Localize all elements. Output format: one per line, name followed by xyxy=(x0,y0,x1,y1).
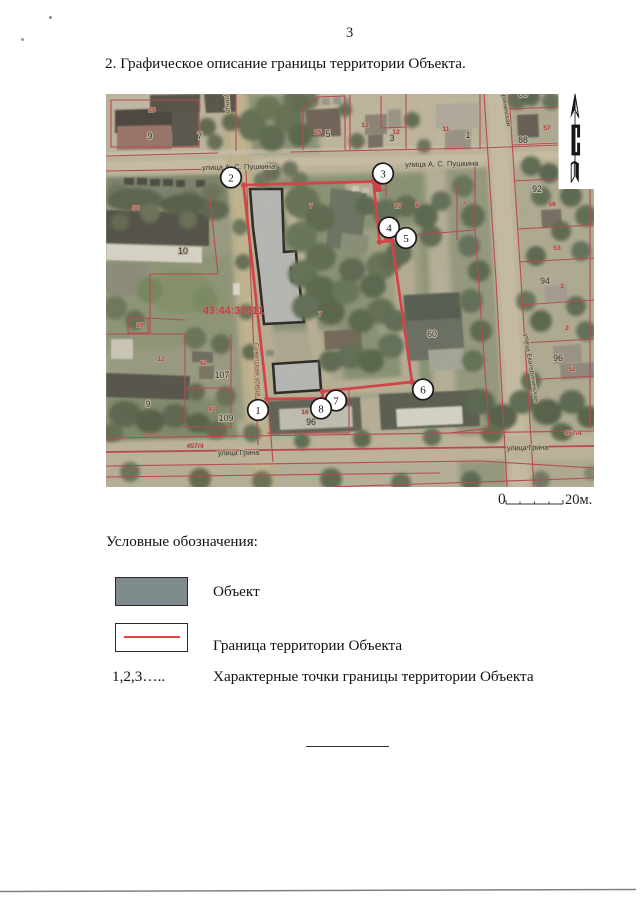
svg-text:6: 6 xyxy=(420,385,426,397)
svg-text:20м.: 20м. xyxy=(565,492,592,508)
svg-text:7: 7 xyxy=(333,396,339,408)
svg-text:5: 5 xyxy=(403,233,409,245)
svg-text:3: 3 xyxy=(380,169,386,181)
svg-text:1: 1 xyxy=(255,405,261,417)
svg-text:0: 0 xyxy=(498,491,506,508)
svg-text:4: 4 xyxy=(386,223,392,235)
svg-text:2: 2 xyxy=(228,173,234,185)
svg-text:8: 8 xyxy=(318,404,324,416)
